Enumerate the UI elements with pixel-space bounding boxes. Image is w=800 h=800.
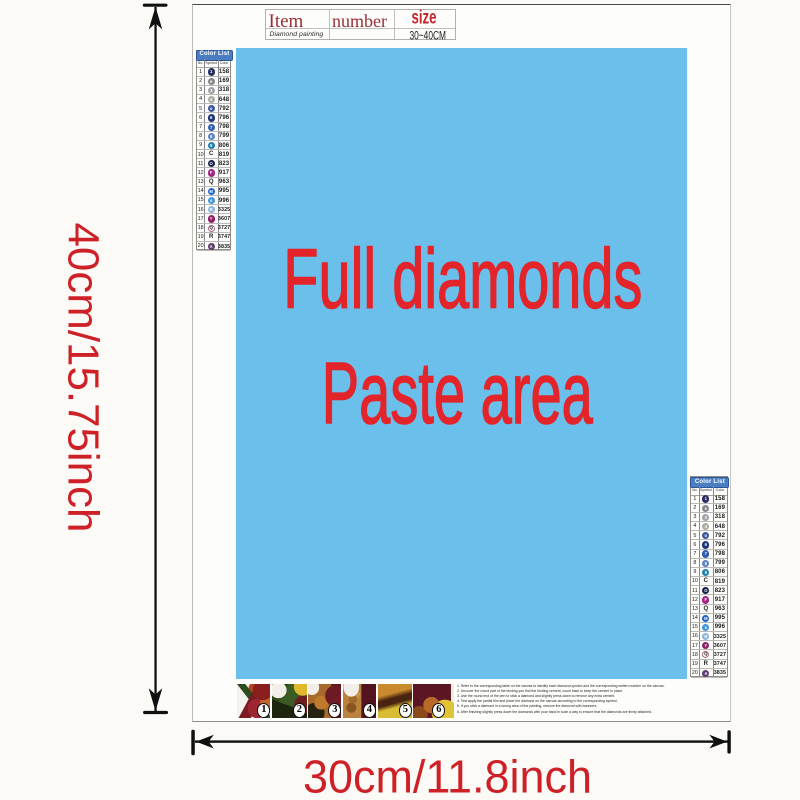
svg-text:Full diamonds: Full diamonds [283,231,642,325]
svg-text:Paste area: Paste area [322,345,593,442]
svg-text:40cm/15.75inch: 40cm/15.75inch [58,223,106,533]
svg-text:30cm/11.8inch: 30cm/11.8inch [303,751,592,800]
svg-text:30~40CM: 30~40CM [410,31,447,43]
svg-text:size: size [412,7,437,29]
